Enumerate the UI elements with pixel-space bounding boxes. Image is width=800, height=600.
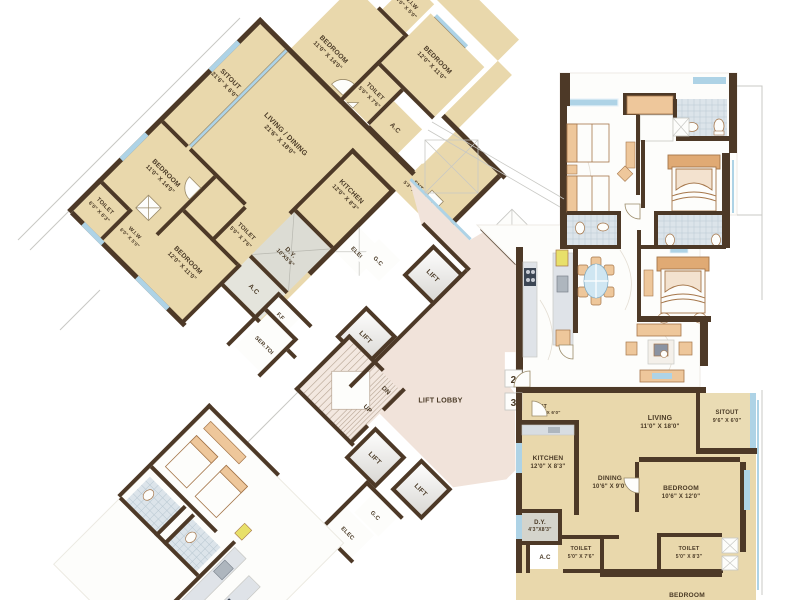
svg-text:LIFT LOBBY: LIFT LOBBY [418, 395, 462, 404]
svg-text:5'0" X 7'6": 5'0" X 7'6" [568, 554, 595, 560]
svg-text:KITCHEN: KITCHEN [533, 455, 564, 462]
svg-text:9'6" X 6'0": 9'6" X 6'0" [713, 418, 742, 424]
svg-text:SITOUT: SITOUT [715, 410, 738, 416]
svg-text:11'0" X 18'0": 11'0" X 18'0" [640, 423, 679, 430]
svg-text:3: 3 [511, 398, 517, 409]
svg-text:5'0" X 8'3": 5'0" X 8'3" [676, 554, 703, 560]
svg-text:BEDROOM: BEDROOM [669, 592, 705, 599]
svg-text:10'6" X 12'0": 10'6" X 12'0" [662, 494, 701, 500]
svg-text:BEDROOM: BEDROOM [663, 485, 699, 492]
svg-text:LIVING: LIVING [648, 415, 673, 422]
svg-text:12'0" X 8'3": 12'0" X 8'3" [531, 464, 566, 470]
svg-text:4'3"X8'3": 4'3"X8'3" [528, 527, 552, 533]
svg-text:TOILET: TOILET [679, 546, 700, 552]
svg-text:D.Y.: D.Y. [534, 520, 546, 526]
svg-text:A.C: A.C [539, 554, 551, 561]
svg-text:TOILET: TOILET [571, 546, 592, 552]
svg-text:10'6" X 9'0": 10'6" X 9'0" [593, 484, 628, 490]
svg-text:DINING: DINING [598, 475, 622, 482]
